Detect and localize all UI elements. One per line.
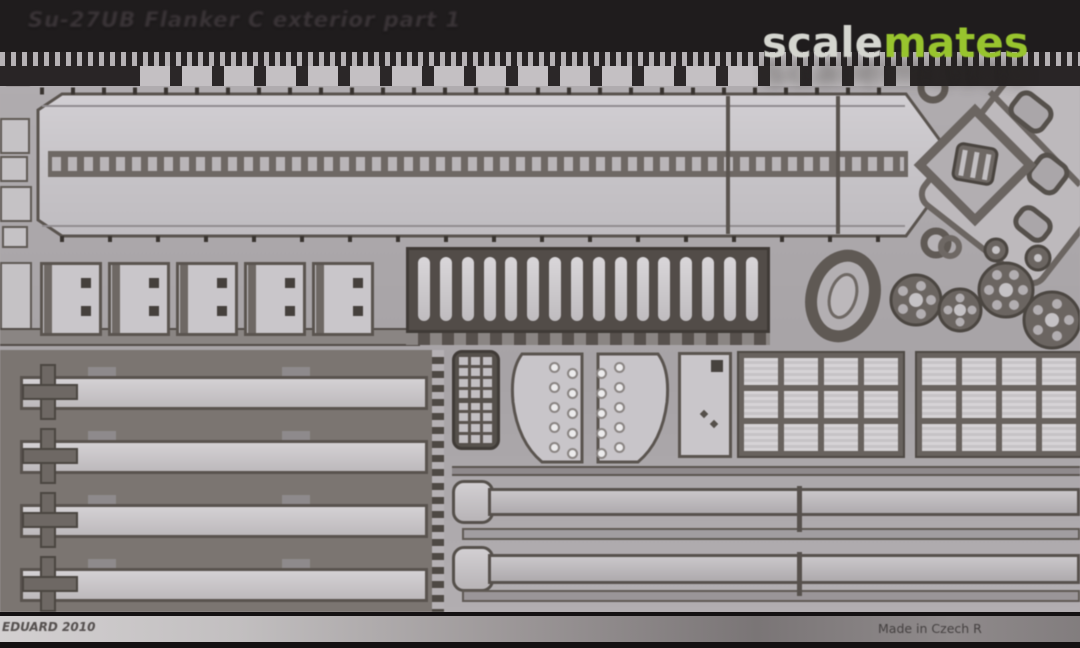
- fan-hole: [569, 450, 576, 457]
- grille-rail: [406, 333, 770, 345]
- photo-etch-fret-photo: Su-27UB Flanker C exterior part 1 scalem…: [0, 0, 1080, 648]
- plate-hole: [217, 306, 227, 316]
- fan-hole: [551, 444, 558, 451]
- sprue-tab: [88, 431, 116, 440]
- plate-hole: [285, 278, 295, 288]
- edge-small-part: [2, 226, 28, 248]
- plate-hole: [81, 306, 91, 316]
- hinge-plate: [108, 262, 170, 336]
- footer-band: EDUARD 2010 Made in Czech R: [0, 612, 1080, 648]
- long-strip-part: [20, 568, 428, 602]
- fan-hole: [616, 404, 623, 411]
- grid-cell: [744, 391, 778, 418]
- grid-cell: [1042, 391, 1076, 418]
- grille-slot: [615, 257, 627, 321]
- grid-cell: [1042, 358, 1076, 385]
- mini-grid-top: [459, 357, 493, 398]
- fan-hole: [598, 410, 605, 417]
- footer-maker-text: EDUARD 2010: [2, 620, 95, 634]
- grid-cell: [1002, 358, 1036, 385]
- grid-cell: [824, 391, 858, 418]
- thin-strip-part: [462, 590, 1080, 602]
- grid-cell: [744, 358, 778, 385]
- fan-hole: [551, 424, 558, 431]
- edge-small-part: [0, 156, 28, 182]
- panel-mark: [710, 420, 718, 428]
- grid-cell: [784, 424, 818, 451]
- plus-connector: [22, 576, 78, 592]
- edge-small-part: [0, 186, 32, 222]
- watermark-mates-text: mates: [883, 18, 1029, 67]
- fan-hole-column: [569, 370, 576, 457]
- grid-cell: [1002, 391, 1036, 418]
- hinge-plate: [176, 262, 238, 336]
- grid-cell: [922, 391, 956, 418]
- plate-hole: [149, 278, 159, 288]
- plate-hole: [149, 306, 159, 316]
- plate-edge-bar: [316, 265, 324, 333]
- plate-hole: [217, 278, 227, 288]
- watermark-scale-text: scale: [762, 18, 883, 67]
- hinge-plate: [244, 262, 306, 336]
- sprue-tab: [282, 559, 310, 568]
- plate-hole: [353, 278, 363, 288]
- grille-slot: [746, 257, 758, 321]
- strip-row: [0, 416, 444, 480]
- mini-grid-bottom: [459, 403, 493, 444]
- plus-connector: [22, 384, 78, 400]
- strip-stack: [0, 350, 444, 612]
- plate-hole: [285, 306, 295, 316]
- plate-holes: [353, 278, 363, 316]
- fret-layer: [0, 0, 1080, 648]
- sprue-tab-strip: [140, 66, 910, 86]
- panel-hole: [711, 360, 723, 372]
- fan-hole: [598, 430, 605, 437]
- bulb-strip-part: [488, 488, 1080, 516]
- long-strip-part: [20, 376, 428, 410]
- fan-hole: [551, 404, 558, 411]
- plus-connector: [22, 448, 78, 464]
- grille-slot: [418, 257, 430, 321]
- sprue-tick: [797, 486, 802, 532]
- strip-row: [0, 480, 444, 544]
- plate-hole: [353, 306, 363, 316]
- small-panel-part: [678, 352, 732, 458]
- plate-edge-bar: [112, 265, 120, 333]
- fan-hole-column: [616, 364, 623, 451]
- grille-slot: [462, 257, 474, 321]
- plate-hole: [81, 278, 91, 288]
- strip-row: [0, 544, 444, 608]
- sprue-tab: [282, 431, 310, 440]
- hinge-plate: [312, 262, 374, 336]
- thin-strip-part: [462, 528, 1080, 540]
- hinge-plates-row: [40, 262, 374, 336]
- plate-holes: [149, 278, 159, 316]
- plate-holes: [285, 278, 295, 316]
- sprue-tab: [282, 495, 310, 504]
- plate-edge-bar: [248, 265, 256, 333]
- mini-grid-part: [452, 350, 500, 450]
- grid-cell: [922, 358, 956, 385]
- edge-small-part: [0, 118, 30, 154]
- grid-cell: [962, 391, 996, 418]
- grille-slot: [658, 257, 670, 321]
- plate-edge-bar: [44, 265, 52, 333]
- fan-hole-column: [598, 370, 605, 457]
- grid-cell: [962, 424, 996, 451]
- watermark: scalemates: [762, 18, 1029, 67]
- fan-hole: [569, 430, 576, 437]
- grid-cell: [1002, 424, 1036, 451]
- fan-hole-column: [551, 364, 558, 451]
- grid-cell: [864, 358, 898, 385]
- mesh-grid-panel: [915, 351, 1080, 458]
- fan-hole: [551, 384, 558, 391]
- grille-slot: [702, 257, 714, 321]
- fan-hole: [616, 424, 623, 431]
- grid-cell: [864, 391, 898, 418]
- plus-connector: [22, 512, 78, 528]
- fan-hole: [569, 390, 576, 397]
- sprue-tab: [88, 367, 116, 376]
- grid-cell: [824, 358, 858, 385]
- grille-slot: [505, 257, 517, 321]
- plate-holes: [81, 278, 91, 316]
- footer-origin-text: Made in Czech R: [878, 621, 982, 636]
- plate-holes: [217, 278, 227, 316]
- grille-slot: [484, 257, 496, 321]
- grid-cell: [824, 424, 858, 451]
- bulb-strip-part: [488, 554, 1080, 584]
- ladder-grille-part: [406, 247, 770, 333]
- grid-cell: [922, 424, 956, 451]
- plate-edge-bar: [180, 265, 188, 333]
- sprue-tab: [282, 367, 310, 376]
- strip-row: [0, 352, 444, 416]
- fan-hole: [598, 450, 605, 457]
- fan-hole: [616, 384, 623, 391]
- long-strip-part: [20, 440, 428, 474]
- grid-cell: [784, 358, 818, 385]
- tab-row: [0, 66, 1080, 86]
- long-strip-part: [20, 504, 428, 538]
- rect-parts-layer: [0, 0, 1080, 648]
- fan-hole: [551, 364, 558, 371]
- fan-hole: [569, 370, 576, 377]
- fan-hole: [616, 444, 623, 451]
- sprue-tab: [88, 495, 116, 504]
- grille-slot: [440, 257, 452, 321]
- sprue-tick: [797, 552, 802, 596]
- embossed-title: Su-27UB Flanker C exterior part 1: [28, 8, 461, 32]
- grid-cell: [784, 391, 818, 418]
- fan-hole: [616, 364, 623, 371]
- fan-hole: [569, 410, 576, 417]
- grille-slot: [527, 257, 539, 321]
- grid-cell: [962, 358, 996, 385]
- grille-slot: [549, 257, 561, 321]
- fan-hole: [598, 390, 605, 397]
- sprue-tab: [88, 559, 116, 568]
- grid-cell: [864, 424, 898, 451]
- grille-slot: [637, 257, 649, 321]
- fan-hole: [598, 370, 605, 377]
- panel-mark: [700, 410, 708, 418]
- long-strip-group: [452, 462, 1080, 612]
- grille-slot: [680, 257, 692, 321]
- thin-strip-part: [452, 466, 1080, 476]
- grille-slot: [724, 257, 736, 321]
- hinge-plate: [40, 262, 102, 336]
- grille-slot: [593, 257, 605, 321]
- grid-cell: [744, 424, 778, 451]
- strip-rows: [0, 352, 444, 608]
- mesh-grid-panel: [737, 351, 905, 458]
- grille-slot: [571, 257, 583, 321]
- grid-cell: [1042, 424, 1076, 451]
